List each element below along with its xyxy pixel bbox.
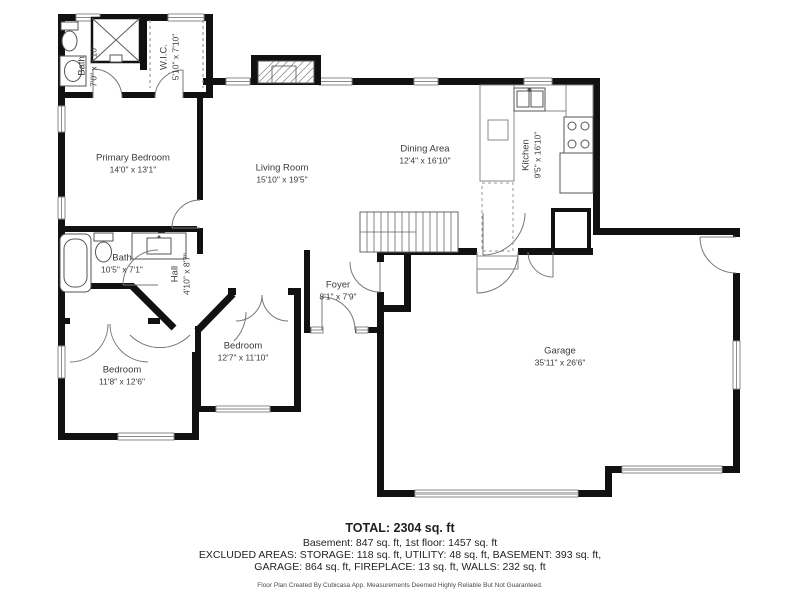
- room-label-bath-lower: Bath10'5" x 7'1": [101, 252, 143, 275]
- sink-icon: [514, 88, 545, 111]
- room-label-wic: W.I.C.5'10" x 7'10": [158, 34, 181, 81]
- area-summary: TOTAL: 2304 sq. ft Basement: 847 sq. ft,…: [0, 521, 800, 589]
- floors-area-line: Basement: 847 sq. ft, 1st floor: 1457 sq…: [0, 537, 800, 549]
- room-label-bedroom-left: Bedroom11'8" x 12'6": [99, 364, 145, 387]
- room-label-living-room: Living Room15'10" x 19'5": [256, 162, 309, 185]
- excluded-areas-line-2: GARAGE: 864 sq. ft, FIREPLACE: 13 sq. ft…: [0, 561, 800, 573]
- room-label-kitchen: Kitchen9'5" x 16'10": [520, 132, 543, 179]
- dishwasher-icon: [488, 120, 508, 140]
- room-label-garage: Garage35'11" x 26'6": [535, 345, 586, 368]
- stove-icon: [564, 117, 593, 153]
- floor-plan-canvas: Bath7'0" x 7'10" W.I.C.5'10" x 7'10" Pri…: [0, 0, 800, 600]
- garage-doors: [415, 466, 722, 497]
- room-label-bath-upper: Bath7'0" x 7'10": [76, 45, 99, 87]
- room-label-dining-area: Dining Area12'4" x 16'10": [399, 143, 450, 166]
- room-label-foyer: Foyer8'1" x 7'9": [319, 279, 356, 302]
- fireplace: [251, 55, 321, 85]
- disclaimer-text: Floor Plan Created By Cubicasa App. Meas…: [0, 582, 800, 589]
- room-label-bedroom-middle: Bedroom12'7" x 11'10": [218, 340, 269, 363]
- stairs: [360, 212, 458, 252]
- total-area: TOTAL: 2304 sq. ft: [0, 521, 800, 537]
- room-label-primary-bedroom: Primary Bedroom14'0" x 13'1": [96, 152, 170, 175]
- bathtub-icon: [60, 234, 91, 292]
- pantry-closet: [553, 210, 589, 250]
- fridge-icon: [560, 153, 593, 193]
- excluded-areas-line-1: EXCLUDED AREAS: STORAGE: 118 sq. ft, UTI…: [0, 549, 800, 561]
- room-label-hall: Hall4'10" x 8'7": [169, 253, 192, 295]
